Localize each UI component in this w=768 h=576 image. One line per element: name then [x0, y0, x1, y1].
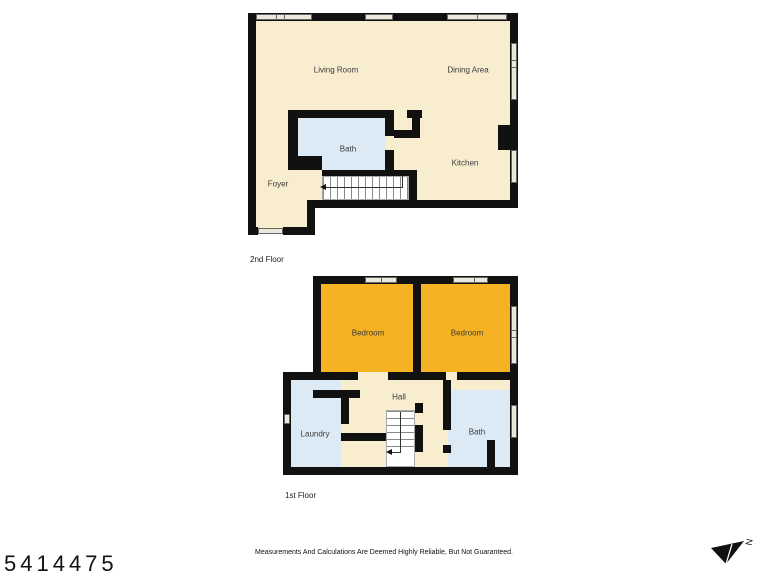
wall	[313, 390, 360, 398]
window	[365, 14, 393, 20]
window-mullion	[511, 330, 517, 331]
stair-run-line	[326, 187, 402, 188]
room-label-bedroom-left: Bedroom	[352, 329, 384, 338]
fireplace	[498, 125, 518, 150]
floor-caption-1st: 1st Floor	[285, 491, 316, 500]
wall	[283, 227, 315, 235]
window-mullion	[511, 60, 517, 61]
room-label-foyer: Foyer	[268, 180, 288, 189]
floorplan-page: Living Room Dining Area Bath Kitchen Foy…	[0, 0, 768, 576]
wall	[385, 110, 394, 136]
wall	[248, 13, 256, 235]
wall	[313, 276, 321, 380]
wall	[487, 440, 495, 467]
floor-caption-2nd: 2nd Floor	[250, 255, 284, 264]
window-mullion	[381, 277, 382, 283]
wall	[288, 156, 322, 170]
window-mullion	[474, 277, 475, 283]
window	[511, 405, 517, 438]
room-label-living-room: Living Room	[314, 66, 358, 75]
stair-run-line	[400, 412, 401, 453]
north-label: N	[743, 538, 754, 546]
wall	[283, 467, 518, 475]
window-mullion	[477, 14, 478, 20]
room-label-kitchen: Kitchen	[452, 159, 479, 168]
room-label-dining-area: Dining Area	[447, 66, 488, 75]
wall	[313, 372, 358, 380]
wall	[443, 380, 451, 430]
window	[511, 150, 517, 183]
window-mullion	[276, 14, 277, 20]
wall	[248, 227, 258, 235]
stair-direction-arrow	[320, 184, 326, 190]
stair-direction-arrow	[386, 449, 392, 455]
north-arrow-icon: N	[706, 533, 760, 571]
wall	[415, 403, 423, 413]
room-label-bedroom-right: Bedroom	[451, 329, 483, 338]
wall	[413, 276, 421, 372]
room-label-bath: Bath	[340, 145, 356, 154]
wall	[409, 170, 417, 208]
disclaimer-text: Measurements And Calculations Are Deemed…	[0, 549, 768, 556]
wall	[385, 150, 394, 170]
room-label-hall: Hall	[392, 393, 406, 402]
wall	[388, 372, 446, 380]
wall	[443, 445, 451, 453]
door-opening	[258, 228, 283, 234]
window	[511, 43, 517, 100]
window-mullion	[511, 337, 517, 338]
wall	[341, 433, 390, 441]
window	[511, 306, 517, 364]
wall	[394, 130, 420, 138]
window-mullion	[284, 14, 285, 20]
wall	[288, 110, 385, 118]
room-label-bath: Bath	[469, 428, 485, 437]
window	[284, 414, 290, 424]
stair-run-line	[402, 176, 403, 188]
wall	[341, 398, 349, 424]
room-label-laundry: Laundry	[301, 430, 330, 439]
window-mullion	[511, 67, 517, 68]
stairs-up	[322, 176, 409, 200]
wall	[415, 425, 423, 452]
window	[453, 277, 488, 283]
stair-treads	[323, 177, 408, 199]
wall	[457, 372, 518, 380]
